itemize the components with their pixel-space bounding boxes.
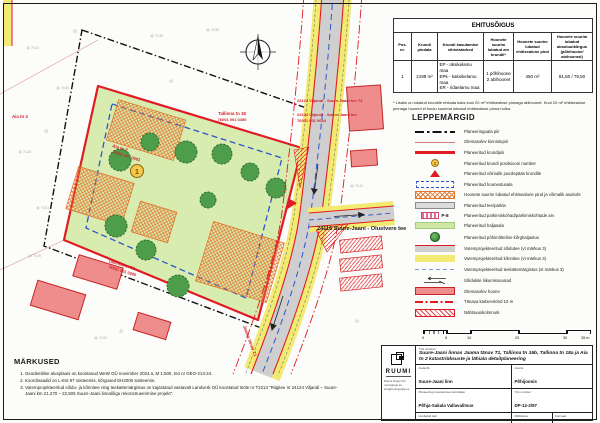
notes-list: Geodeetilise alusplaani on koostanud WeW…: [14, 371, 344, 398]
note-item: Varemprojekteeritud sõidu- ja kõnnitee n…: [25, 385, 344, 399]
work-number-cell: Töö number:DP-12-2/97: [512, 389, 592, 413]
note-item: Koordinaadid on L-Est 97 süsteemis, kõrg…: [25, 378, 344, 385]
scale-bar-segments: [423, 330, 591, 335]
scale-label: 35 m: [581, 336, 589, 340]
position-number-swatch: 1: [412, 159, 458, 168]
elevation-label: 74.42: [31, 46, 39, 50]
note-item: Geodeetilise alusplaani on koostanud WeW…: [25, 371, 344, 378]
col-area: Krundi pindala: [412, 33, 438, 61]
scale-label: 5: [445, 336, 447, 340]
cell-area: 2199 m²: [412, 61, 438, 93]
legend-item: Sõidukite liikumissuunad: [412, 276, 594, 285]
plan-sheet: 74.42 74.55 74.38 74.61 74.47 74.52 74.3…: [0, 0, 600, 423]
col-pos: Pos. nr.: [394, 33, 412, 61]
notes-section: MÄRKUSED Geodeetilise alusplaani on koos…: [14, 357, 344, 398]
planned-plot-line-swatch: [412, 151, 458, 153]
existing-building-5: [350, 149, 377, 167]
use-1: EP - üksikelamu maa: [440, 62, 482, 74]
company-logo-icon: [391, 352, 406, 367]
company-logo-cell: RUUMI Ruumi Grupp OÜ ruumigrupp.ee info@…: [382, 346, 416, 420]
elevation-label: 74.49: [33, 254, 41, 258]
location-cell: Asukoht:Suure-Jaani linn: [416, 365, 512, 389]
legend-item: Planeeritud haljasala: [412, 222, 594, 230]
table-footnote: * Lisaks on lubatud krundile ehitada kak…: [393, 100, 594, 111]
scale-label: 20: [515, 336, 519, 340]
footpath-swatch: [412, 255, 458, 262]
road-parking-swatch: [412, 202, 458, 209]
elevation-label: 74.36: [155, 34, 163, 38]
buildable-area-swatch: [412, 191, 458, 199]
cell-footprint: 450 m²: [514, 61, 552, 93]
title-block: RUUMI Ruumi Grupp OÜ ruumigrupp.ee info@…: [381, 345, 593, 421]
legend-item: Olemasolev kinnistupiir: [412, 138, 594, 146]
use-3: ER - ridaelamu maa: [440, 85, 482, 91]
elevation-label: 74.55: [61, 86, 69, 90]
scale-label: 0: [422, 336, 424, 340]
north-compass-icon: [240, 34, 276, 70]
legend-item: Planeeritud võimalik juurdepääs krundile: [412, 170, 594, 178]
legend-title: LEPPEMÄRGID: [412, 113, 594, 122]
legend-item: Planeeritud tee/parkla: [412, 202, 594, 210]
green-area-swatch: [412, 222, 458, 229]
plot-position-marker: 1: [131, 165, 144, 178]
branch-road: [309, 206, 394, 227]
table-title: EHITUSÕIGUS: [394, 19, 593, 33]
label-aia-tn-4: Aia tn 4: [12, 114, 28, 119]
organizer-cell: Planeeringu koostamise korraldaja:Põhja-…: [416, 389, 512, 413]
legend-item: Planeeritud hoonestusala: [412, 180, 594, 188]
cell-pos: 1: [394, 61, 412, 93]
drawing-cell: Joonis:Põhijoonis: [512, 365, 592, 389]
work-title-cell: Töö nimetus: Suure-Jaani linnas Jaama tä…: [416, 346, 592, 365]
cell-height: 81,50 / 79,50: [552, 61, 593, 93]
company-detail: info@ruumigrupp.ee: [384, 387, 413, 391]
scale-label: 10: [467, 336, 471, 340]
use-2: EPk - kaksikelamu maa: [440, 74, 482, 86]
scale-cell: Mõõtkava:M 1:500: [512, 413, 552, 423]
elevation-label: 74.52: [99, 336, 107, 340]
scale-label: 30: [563, 336, 567, 340]
table-header-row: Pos. nr. Krundi pindala Krundi kasutamis…: [394, 33, 593, 61]
legend-item: Planeeritud krundipiir: [412, 149, 594, 157]
legend-item: Varemprojekteeritud sõidutee (vt märkus …: [412, 245, 594, 253]
legend-item: Varemprojekteeritud kõnnitee (vt märkus …: [412, 255, 594, 263]
existing-building-4: [347, 85, 384, 131]
existing-building-2: [30, 280, 85, 319]
building-rights-table: EHITUSÕIGUS Pos. nr. Krundi pindala Krun…: [393, 18, 593, 93]
col-footprint: Hoonete suurim lubatud ehitisealune pind: [514, 33, 552, 61]
elevation-label: 74.61: [41, 206, 49, 210]
format-cell: Formaat:A3: [552, 413, 593, 423]
traffic-direction-swatch: [412, 276, 458, 285]
corner-road-fragment: [3, 0, 12, 46]
tree-swatch: [412, 232, 458, 242]
existing-building-swatch: [412, 287, 458, 295]
count-2: 2 abihoonet: [486, 77, 512, 83]
existing-parcel-line-swatch: [412, 142, 458, 143]
label-road-t4: 24124 Viljandi - Suure-Jaani tee T4: [297, 98, 363, 103]
scale-format-cell: Mõõtkava:M 1:500 Formaat:A3: [512, 413, 592, 423]
label-olustvere-road: 24116 Suure-Jaani - Olustvere tee: [317, 226, 406, 232]
col-uses: Krundi kasutamise sihtotstarbed: [438, 33, 484, 61]
elevation-label: 74.38: [23, 150, 31, 154]
legend-item: P-8Planeeritud parkimiskohad/parkimiskoh…: [412, 212, 594, 220]
label-road-main-code: 76001 001 0054: [297, 118, 327, 123]
plot-position-number: 1: [135, 169, 139, 176]
notes-title: MÄRKUSED: [14, 357, 344, 366]
legend-item: Tänava kaitsevöönd 10 m: [412, 298, 594, 306]
count-1: 1 põhihoone: [486, 71, 512, 77]
interested-party-cell: Huvitatud isik:Põhja-Sakala Vallavalitsu…: [416, 413, 512, 423]
existing-building-3: [133, 312, 171, 339]
legend-item: Planeeritud põhimõtteline kõrghaljastus: [412, 232, 594, 242]
work-title: Suure-Jaani linnas Jaama tänav T1, Talli…: [419, 351, 589, 363]
legend-item: Nähtavuskolmnurk: [412, 309, 594, 317]
legend-item: 1Planeeritud krundi positsiooni number: [412, 159, 594, 168]
table-row: 1 2199 m² EP - üksikelamu maa EPk - kaks…: [394, 61, 593, 93]
col-height: Hoonete suurim lubatud absoluutkõrgus (p…: [552, 33, 593, 61]
building-envelope-swatch: [412, 181, 458, 188]
legend-item: Hoonete suurim lubatud ehitisealune pind…: [412, 191, 594, 199]
cell-count: 1 põhihoone 2 abihoonet: [484, 61, 514, 93]
elevation-label: 74.58: [211, 28, 219, 32]
scale-bar: 0 5 10 20 30 35 m: [423, 330, 591, 342]
legend-item: Varemprojekteeritud teekattemärgistus (v…: [412, 265, 594, 273]
col-count: Hoonete suurim lubatud arv krundil*: [484, 33, 514, 61]
visibility-triangle-swatch: [412, 309, 458, 317]
legend: LEPPEMÄRGID Planeeringuala piir Olemasol…: [412, 113, 594, 319]
protection-zone-swatch: [412, 301, 458, 303]
parking-count-swatch: P-8: [412, 212, 458, 219]
cell-uses: EP - üksikelamu maa EPk - kaksikelamu ma…: [438, 61, 484, 93]
hatched-structures: [339, 236, 382, 291]
elevation-label: 74.44: [355, 184, 363, 188]
road-marking-swatch: [412, 269, 458, 270]
legend-item: Planeeringuala piir: [412, 128, 594, 136]
label-road-main: 24124 Viljandi - Suure-Jaani tee: [297, 112, 358, 117]
carriageway-swatch: [412, 245, 458, 252]
legend-item: Olemasolev hoone: [412, 287, 594, 295]
label-tallinna-tn-18: Tallinna tn 18: [218, 111, 246, 116]
label-tallinna-tn-18-code: 76001 001 0450: [218, 117, 248, 122]
access-triangle-swatch: [412, 170, 458, 177]
company-name: RUUMI: [386, 369, 412, 377]
planning-boundary-swatch: [412, 131, 458, 133]
